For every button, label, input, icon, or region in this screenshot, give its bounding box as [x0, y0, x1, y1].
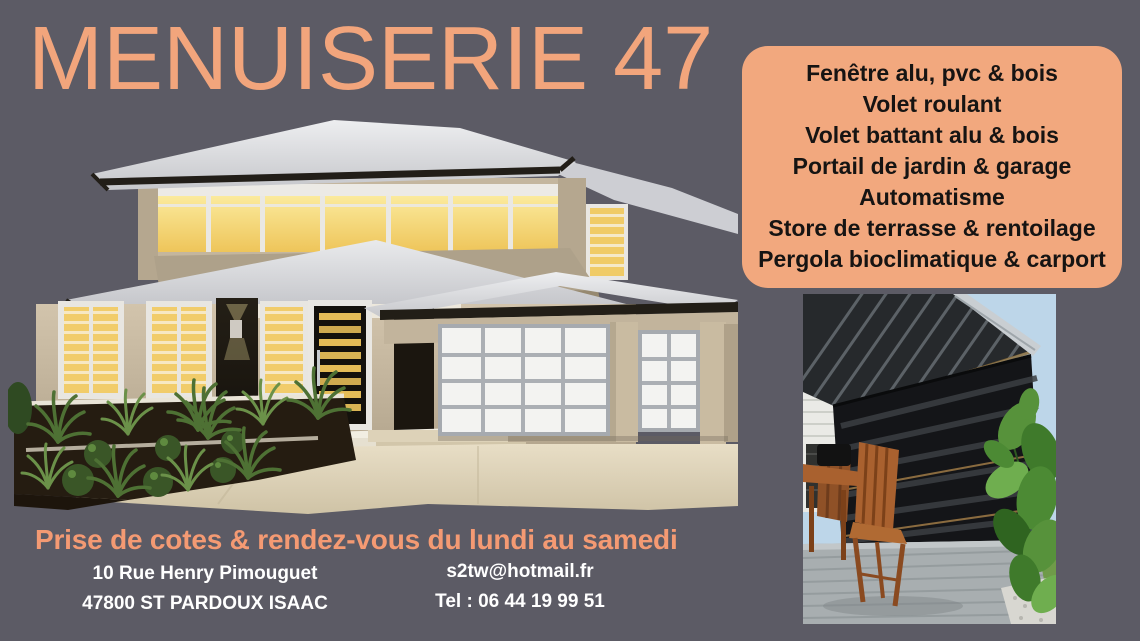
contact-block: s2tw@hotmail.fr Tel : 06 44 19 99 51 — [385, 562, 655, 611]
house-photo — [8, 108, 738, 520]
service-item: Store de terrasse & rentoilage — [742, 213, 1122, 244]
service-item: Fenêtre alu, pvc & bois — [742, 58, 1122, 89]
phone-text: Tel : 06 44 19 99 51 — [385, 592, 655, 611]
services-box: Fenêtre alu, pvc & bois Volet roulant Vo… — [742, 46, 1122, 288]
service-item: Volet battant alu & bois — [742, 120, 1122, 151]
pergola-photo — [803, 294, 1056, 624]
address-block: 10 Rue Henry Pimouguet 47800 ST PARDOUX … — [55, 564, 355, 613]
service-item: Automatisme — [742, 182, 1122, 213]
business-name-title: MENUISERIE 47 — [28, 14, 713, 104]
services-list: Fenêtre alu, pvc & bois Volet roulant Vo… — [742, 58, 1122, 275]
garage-door-double — [438, 324, 610, 436]
service-item: Portail de jardin & garage — [742, 151, 1122, 182]
service-item: Pergola bioclimatique & carport — [742, 244, 1122, 275]
garage-door-single — [638, 330, 700, 432]
address-line-2: 47800 ST PARDOUX ISAAC — [55, 594, 355, 613]
address-line-1: 10 Rue Henry Pimouguet — [55, 564, 355, 583]
service-item: Volet roulant — [742, 89, 1122, 120]
tagline: Prise de cotes & rendez-vous du lundi au… — [35, 524, 735, 556]
email-text: s2tw@hotmail.fr — [385, 562, 655, 581]
